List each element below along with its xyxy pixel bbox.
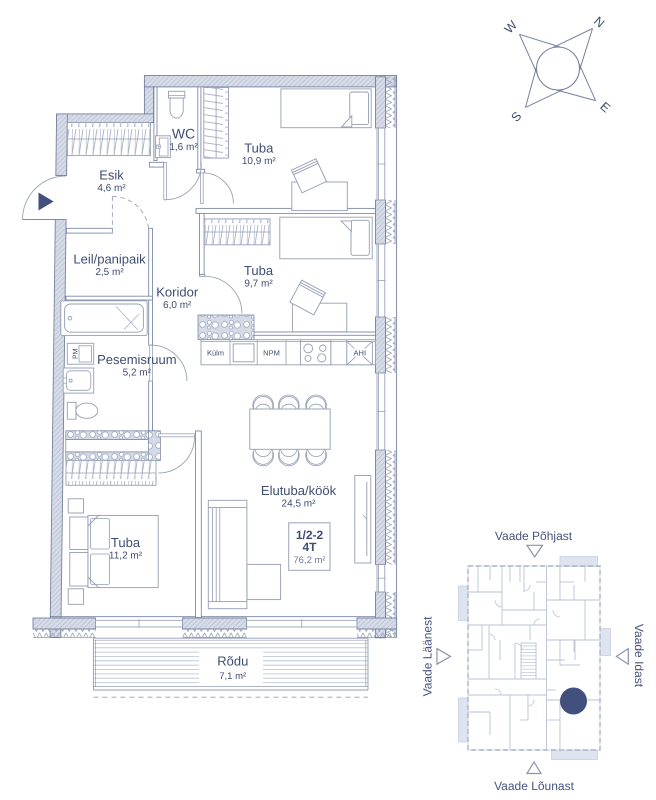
svg-text:Elutuba/köök: Elutuba/köök [261, 483, 337, 498]
svg-text:5,2 m²: 5,2 m² [123, 367, 152, 378]
svg-text:Vaade Põhjast: Vaade Põhjast [495, 529, 573, 543]
svg-text:Pesemisruum: Pesemisruum [97, 352, 176, 367]
svg-text:Esik: Esik [99, 167, 124, 182]
svg-text:2,5 m²: 2,5 m² [95, 267, 124, 278]
svg-text:4T: 4T [302, 540, 317, 554]
svg-text:11,2 m²: 11,2 m² [109, 551, 143, 562]
svg-text:7,1 m²: 7,1 m² [219, 671, 246, 682]
svg-text:1,6 m²: 1,6 m² [169, 142, 198, 153]
svg-text:WC: WC [172, 125, 195, 141]
svg-text:24,5 m²: 24,5 m² [282, 499, 317, 510]
svg-text:Tuba: Tuba [244, 141, 274, 156]
svg-text:Tuba: Tuba [244, 263, 274, 278]
svg-text:Külm: Külm [207, 348, 224, 357]
svg-text:4,6 m²: 4,6 m² [97, 183, 126, 194]
svg-text:6,0 m²: 6,0 m² [163, 300, 192, 311]
svg-text:PM: PM [72, 348, 79, 359]
svg-text:Vaade Läänest: Vaade Läänest [421, 616, 435, 697]
svg-text:9,7 m²: 9,7 m² [244, 278, 273, 289]
svg-text:NPM: NPM [263, 348, 280, 357]
svg-text:Leil/panipaik: Leil/panipaik [73, 251, 146, 266]
svg-text:AHI: AHI [354, 348, 367, 357]
svg-text:Vaade Lõunast: Vaade Lõunast [494, 779, 575, 793]
svg-text:10,9 m²: 10,9 m² [242, 156, 277, 167]
svg-text:Rõdu: Rõdu [217, 653, 248, 668]
svg-text:Vaade Idast: Vaade Idast [632, 624, 646, 688]
svg-text:76,2 m²: 76,2 m² [293, 555, 325, 566]
svg-text:Koridor: Koridor [156, 284, 199, 299]
svg-text:Tuba: Tuba [111, 535, 141, 550]
